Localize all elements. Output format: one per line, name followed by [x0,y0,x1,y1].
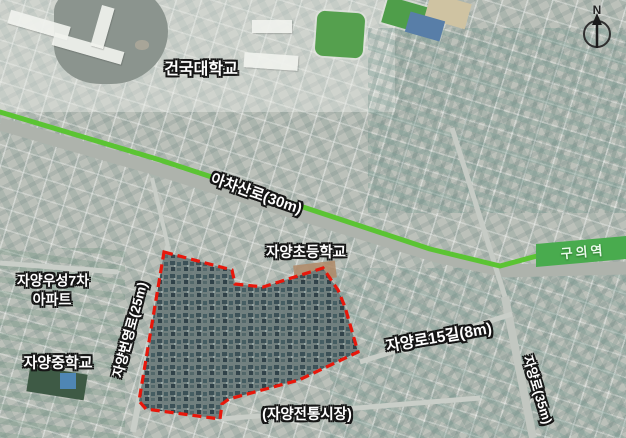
label-apartment-line2: 아파트 [33,291,72,309]
aerial-site-map: 건국대학교 아차산로(30m) 구의역 자양초등학교 자양우성7차 아파트 자양… [0,0,626,438]
label-guui-station: 구의역 [560,240,606,263]
label-market: (자양전통시장) [262,406,352,424]
label-middle-school: 자양중학교 [23,355,92,374]
label-university: 건국대학교 [164,60,238,80]
label-apartment-line1: 자양우성7차 [17,272,89,290]
project-boundary [139,252,358,419]
label-compass-north: N [593,3,602,17]
label-elementary-school: 자양초등학교 [266,244,346,262]
compass [584,13,610,48]
minor-road [152,178,168,246]
minor-road [0,263,118,272]
